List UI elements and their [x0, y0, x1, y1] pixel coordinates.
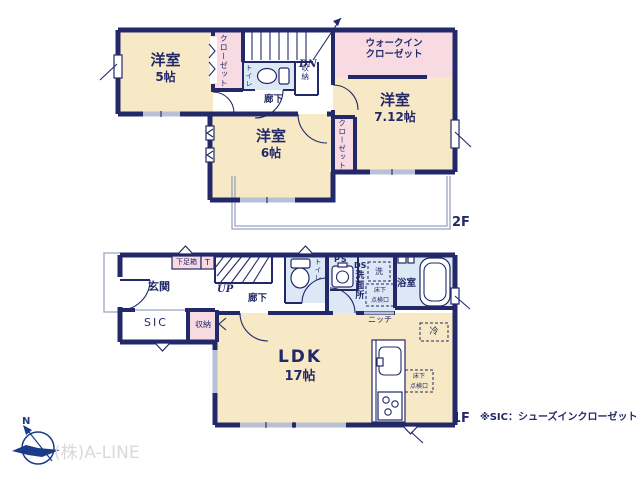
bedroom6-name: 洋室: [212, 128, 330, 145]
kitchen-tap: [377, 358, 383, 366]
bath-tap-1: [398, 257, 406, 263]
toilet-icon-2f: [258, 68, 290, 84]
label-hallway-1f: 廊下: [248, 294, 267, 305]
label-bedroom712: 洋室 7.12帖: [335, 92, 455, 125]
stairs-arrow-2f: [333, 18, 341, 26]
label-closet-left: クローゼット: [219, 34, 228, 88]
toilet-bowl-1f: [291, 268, 309, 288]
ldk-size: 17帖: [240, 370, 360, 385]
compass-icon: [12, 425, 60, 464]
label-bathroom: 浴室: [397, 279, 416, 290]
label-walk-in-closet: ウォークイン クローゼット: [335, 39, 453, 61]
label-hallway-2f: 廊下: [264, 95, 283, 106]
label-shoe-box-t: T: [201, 256, 214, 269]
label-entrance: 玄関: [148, 281, 170, 294]
ldk-name: LDK: [240, 348, 360, 368]
stairs-treads-1f: [215, 255, 270, 283]
floor-plan-page: 洋室 5帖 クローゼット DN トイレ 収納 廊下 ウォークイン クローゼット …: [0, 0, 640, 480]
sic-note: ※SIC：シューズインクローゼット: [480, 412, 637, 424]
label-stairs-up: UP: [217, 284, 233, 296]
label-shoe-box: 下足箱: [172, 256, 201, 269]
bath-tap-2: [408, 257, 414, 263]
label-floor-1f: 1F: [452, 412, 470, 427]
stairs-treads-2f: [252, 32, 306, 60]
toilet-icon-1f: [291, 259, 310, 288]
kitchen-stove: [378, 392, 402, 420]
label-niche: ニッチ: [368, 315, 392, 324]
bedroom712-name: 洋室: [335, 92, 455, 109]
toilet-tank-2f: [279, 68, 289, 84]
label-ldk: LDK 17帖: [240, 348, 360, 384]
label-storage-1f: 収納: [189, 320, 217, 329]
label-floor-2f: 2F: [452, 216, 470, 231]
compass-north-label: N: [22, 416, 30, 428]
company-name: (株)A-LINE: [54, 444, 140, 464]
vanity-sink-icon: [332, 263, 353, 287]
vanity-counter: [332, 266, 353, 287]
label-toilet-1f: トイレ: [314, 258, 322, 288]
toilet-tank-1f: [291, 259, 310, 268]
vent-bottom-ldk: [403, 426, 418, 434]
bedroom5-name: 洋室: [118, 52, 213, 69]
bedroom6-size: 6帖: [212, 147, 330, 161]
label-pipe-space: PS: [334, 255, 348, 264]
label-sic: SIC: [125, 317, 187, 330]
label-bedroom6: 洋室 6帖: [212, 128, 330, 161]
toilet-bowl-2f: [258, 69, 277, 84]
vent-bottom-sic: [155, 343, 170, 351]
label-toilet-2f: トイレ: [245, 64, 253, 90]
vent-top-toilet: [298, 246, 313, 254]
label-floor-hatch-1: 床下 点検口: [366, 286, 394, 305]
label-duct-space: DS: [354, 261, 366, 270]
label-washer: 洗: [368, 262, 390, 281]
label-washroom: 洗面所: [353, 270, 363, 312]
label-refrigerator: 冷: [420, 323, 448, 341]
kitchen-icons: [372, 340, 405, 422]
floor-plan-svg: [0, 0, 640, 480]
label-closet-right: クローゼット: [337, 119, 346, 171]
label-storage-2f: 収納: [300, 64, 309, 94]
label-floor-hatch-2: 床下 点検口: [405, 372, 433, 391]
vent-line-ldk: [411, 432, 423, 443]
bedroom5-size: 5帖: [118, 71, 213, 85]
label-bedroom5: 洋室 5帖: [118, 52, 213, 85]
vent-top-shoebox: [178, 246, 193, 254]
bedroom712-size: 7.12帖: [335, 111, 455, 125]
